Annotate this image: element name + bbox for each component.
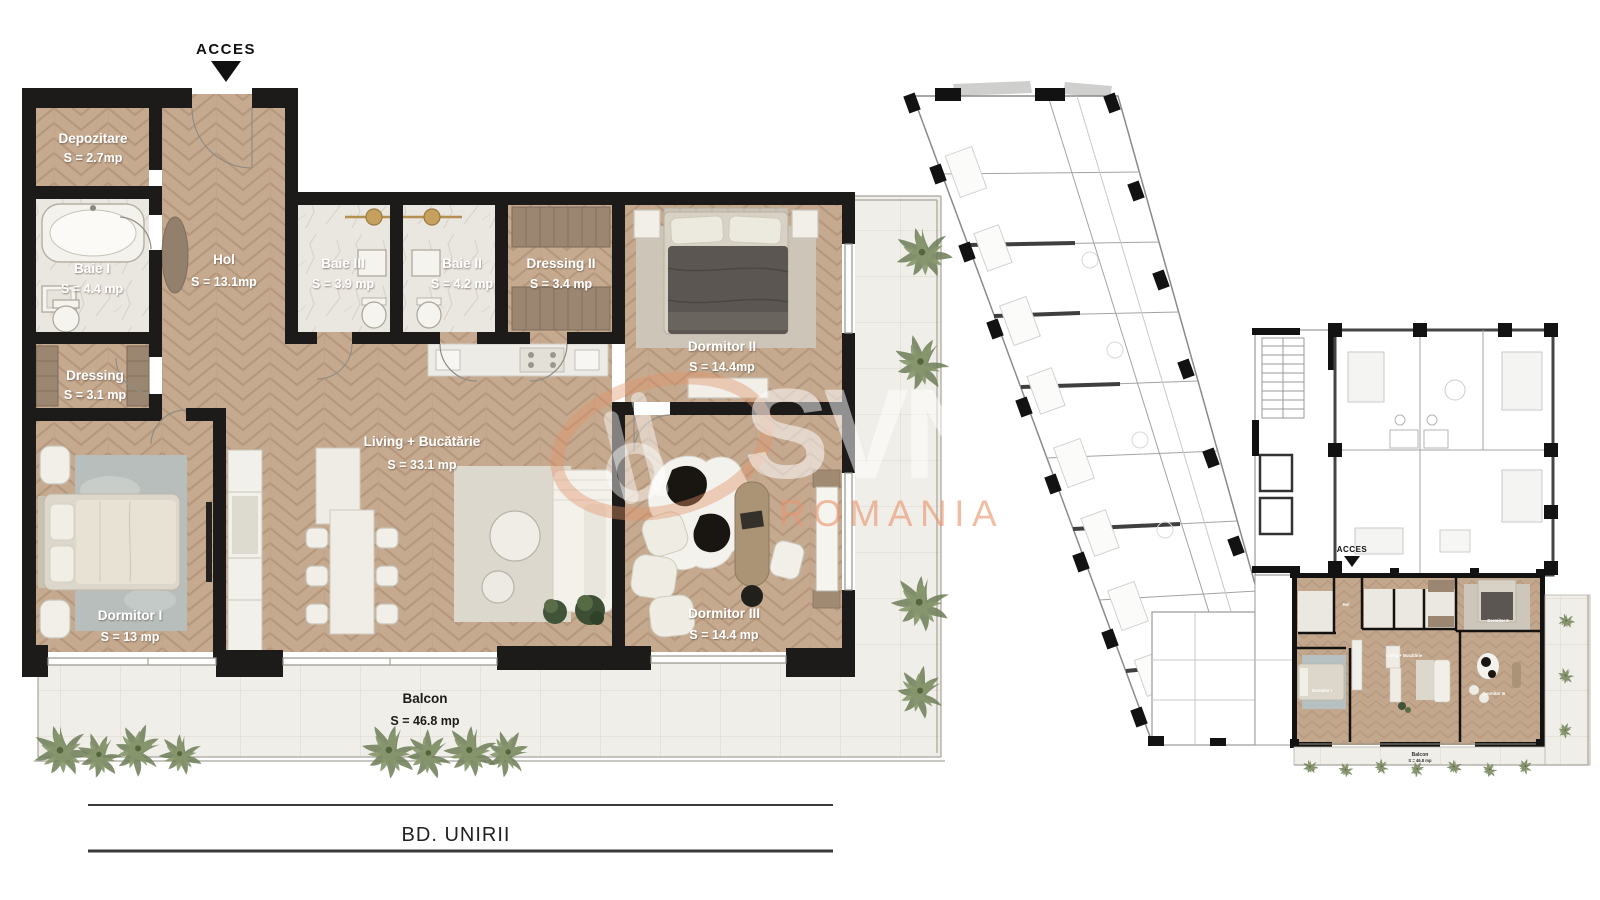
room-label-balcon: Balcon <box>402 691 447 706</box>
overview-label-dormitor3: Dormitor III <box>1483 691 1505 696</box>
living-lounge <box>454 466 613 625</box>
watermark-region: ROMANIA <box>779 493 1004 534</box>
overview-label-living: Living + Bucătărie <box>1386 653 1423 658</box>
room-label-living: Living + Bucătărie <box>364 434 481 449</box>
room-area-balcon: S = 46.8 mp <box>390 714 459 728</box>
room-area-baie2: S = 4.2 mp <box>431 277 494 291</box>
overview-acces-label: ACCES <box>1337 545 1368 554</box>
room-area-dressing2: S = 3.4 mp <box>530 277 593 291</box>
overview-label-dormitor2: Dormitor II <box>1487 618 1508 623</box>
floor-plan-page: ACCES Depozitare S = 2.7mp Baie I S = 4.… <box>0 0 1600 900</box>
room-area-dressing: S = 3.1 mp <box>64 388 127 402</box>
room-area-dormitor1: S = 13 mp <box>101 630 160 644</box>
acces-label: ACCES <box>196 41 256 58</box>
overview-label-hol: Hol <box>1343 602 1350 607</box>
room-area-living: S = 33.1 mp <box>387 458 456 472</box>
overview-label-dormitor1: Dormitor I <box>1312 688 1332 693</box>
room-label-dormitor2: Dormitor II <box>688 339 756 354</box>
room-label-dressing2: Dressing II <box>526 256 595 271</box>
room-label-dressing: Dressing <box>66 368 124 383</box>
room-area-dormitor3: S = 14.4 mp <box>689 628 758 642</box>
overview-unit-highlight: Hol Dormitor II Living + Bucătărie Dormi… <box>1290 568 1545 748</box>
acces-arrow-icon <box>211 61 241 82</box>
floor-plan-canvas: ACCES Depozitare S = 2.7mp Baie I S = 4.… <box>0 0 1600 900</box>
overview-balcon-area: S = 46.8 mp <box>1408 758 1432 763</box>
hol-rug <box>162 217 188 293</box>
watermark-brand: SVN <box>744 363 989 506</box>
room-label-depozitare: Depozitare <box>58 131 128 146</box>
room-area-baie1: S = 4.4 mp <box>61 282 124 296</box>
overview-plan: ACCES <box>903 81 1590 780</box>
room-label-baie1: Baie I <box>74 261 110 276</box>
baie1-toilet <box>53 300 79 332</box>
acces-entrance: ACCES <box>196 41 256 82</box>
street-label-block: BD. UNIRII <box>88 805 833 851</box>
room-area-hol: S = 13.1mp <box>191 275 257 289</box>
room-area-depozitare: S = 2.7mp <box>64 151 123 165</box>
overview-core <box>1252 328 1335 575</box>
room-label-baie2: Baie II <box>442 256 482 271</box>
room-label-dormitor3: Dormitor III <box>688 606 760 621</box>
room-label-hol: Hol <box>213 252 235 267</box>
room-label-baie3: Baie III <box>321 256 365 271</box>
street-label: BD. UNIRII <box>402 824 511 846</box>
bathtub <box>42 204 144 262</box>
room-label-dormitor1: Dormitor I <box>98 608 163 623</box>
room-area-baie3: S = 3.9 mp <box>312 277 375 291</box>
overview-wing-right <box>1328 323 1558 575</box>
